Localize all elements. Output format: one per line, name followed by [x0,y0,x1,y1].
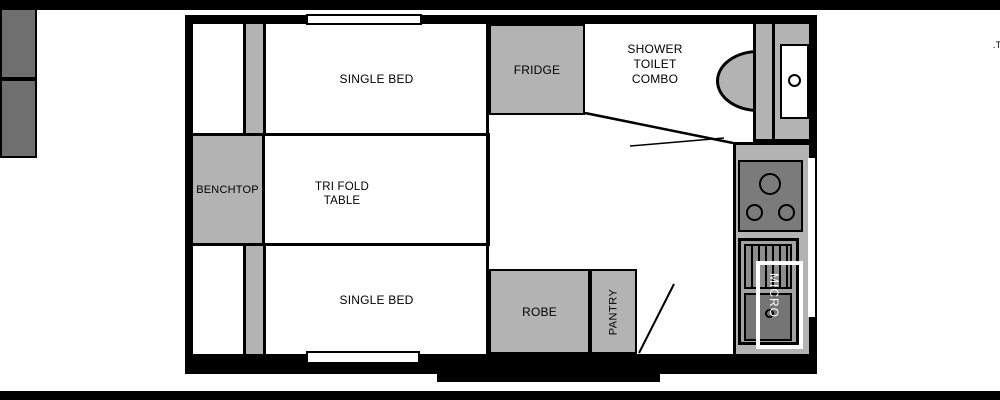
burner-right-icon [778,204,795,221]
table-label-line2: TABLE [287,194,397,208]
bedhead-strip-rear [246,246,263,354]
tv-cabinet-front: .T. [0,0,37,79]
window-front [306,14,422,25]
robe-label: ROBE [522,305,557,319]
wall-left [185,15,193,374]
cooktop [738,160,803,232]
wall-bottom [185,354,817,374]
bathroom-label-line3: COMBO [595,72,715,87]
wall-bottom-step [437,374,660,382]
robe: ROBE [489,269,590,354]
bathroom-label-line1: SHOWER [595,42,715,57]
tv-cabinet-rear [0,79,37,158]
vanity-divider-line [772,24,775,139]
bathroom-label-line2: TOILET [595,57,715,72]
benchtop-label: BENCHTOP [196,183,259,197]
window-kitchen [808,158,815,317]
bottom-edge-bar [0,391,1000,400]
tri-fold-table: TRI FOLD TABLE [262,133,490,246]
single-bed-front-label: SINGLE BED [339,72,413,86]
single-bed-rear-label: SINGLE BED [339,293,413,307]
bathroom-partition-line [585,113,733,143]
pantry: PANTRY [590,269,637,354]
window-rear [306,351,420,364]
table-label-line1: TRI FOLD [287,180,397,194]
shower-toilet-combo: SHOWER TOILET COMBO [595,42,715,87]
caravan-floorplan: .T. SINGLE BED BENCHTOP TRI FOLD TABLE S… [0,0,1000,400]
single-bed-rear: SINGLE BED [263,243,487,354]
burner-large-icon [759,173,781,195]
vanity-unit [753,24,809,142]
basin-drain-icon [788,74,801,87]
microwave-label: MICRO [767,273,781,318]
fridge: FRIDGE [489,24,585,115]
vanity-basin-counter [780,44,809,119]
microwave-outline: MICRO [756,261,803,349]
single-bed-front: SINGLE BED [263,24,487,136]
entry-door-line [639,284,674,353]
top-edge-bar [0,0,1000,10]
tv-label: .T. [993,38,1000,52]
wall-top [185,15,817,24]
burner-left-icon [746,204,763,221]
pantry-label: PANTRY [607,288,621,335]
bathroom-door-line [630,138,724,146]
bedhead-strip-front [246,24,263,133]
benchtop: BENCHTOP [193,133,262,246]
fridge-label: FRIDGE [514,63,561,77]
